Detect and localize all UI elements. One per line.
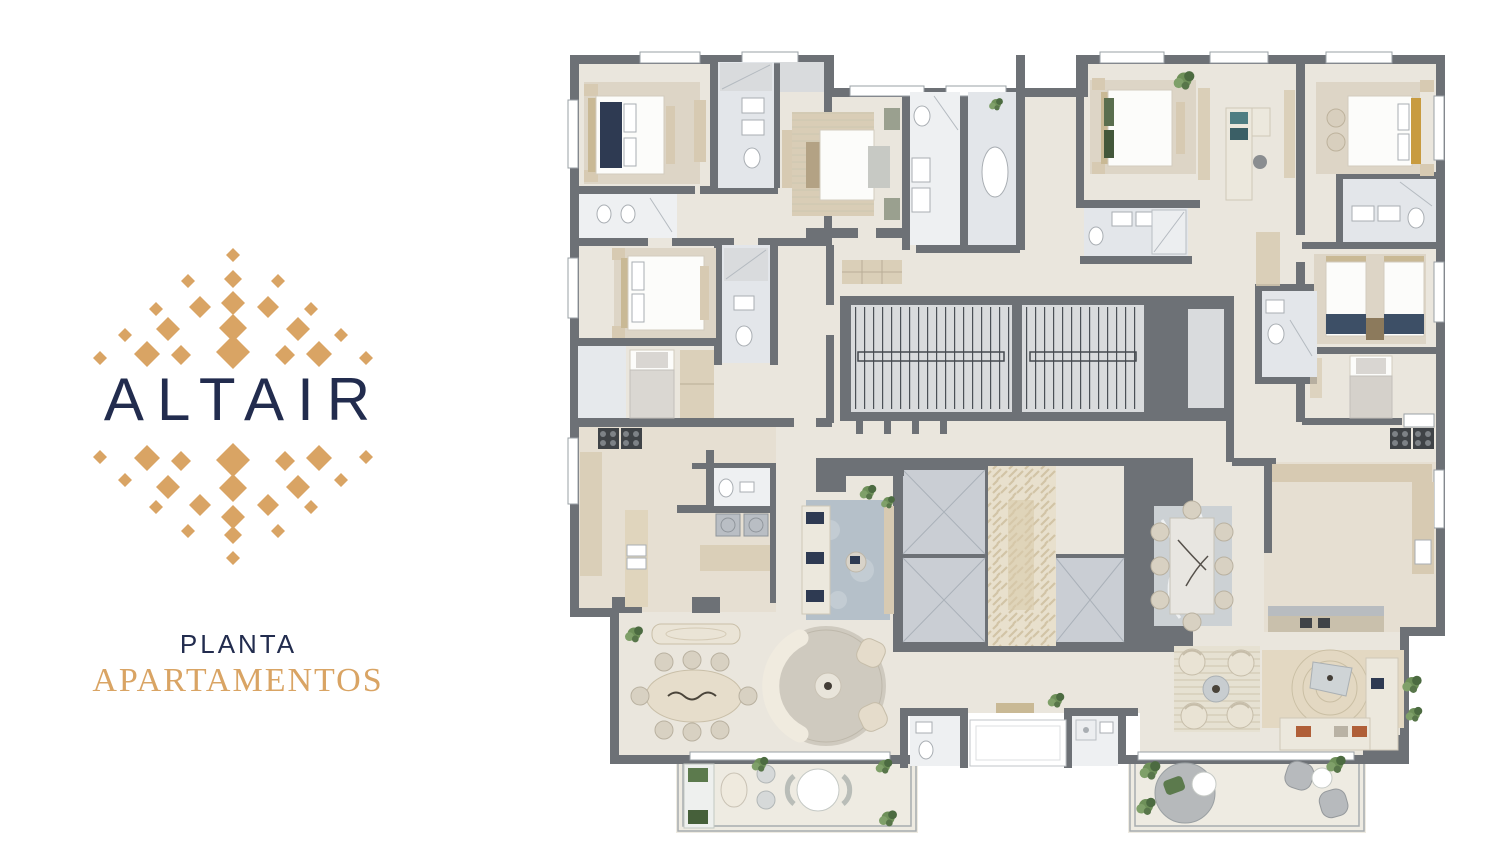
tv-console (884, 506, 894, 614)
green-pillow (1104, 98, 1114, 126)
bathroom-top-left (718, 62, 774, 188)
service-wc (714, 468, 770, 506)
sofa (1366, 658, 1398, 750)
bathroom-center (910, 92, 960, 245)
side-table (721, 773, 747, 807)
brand-subtitle-apartamentos: APARTAMENTOS (40, 662, 434, 700)
closet (680, 350, 714, 418)
powder-right (1072, 716, 1118, 766)
bedroom-left-small (578, 346, 714, 418)
brochure-page: ALTAIR PLANTA APARTAMENTOS (0, 0, 1495, 868)
teal-pillow (1230, 112, 1248, 124)
utility-shaft (1144, 296, 1234, 421)
brand-name: ALTAIR (40, 370, 434, 430)
lounge-right (1174, 646, 1260, 732)
master-bedroom (1090, 71, 1210, 180)
green-pillow (1104, 130, 1114, 158)
wc-left (579, 194, 677, 238)
outdoor-table (797, 769, 839, 811)
living-left (802, 485, 895, 620)
dining-right (1151, 501, 1233, 631)
elevator-lobby (893, 458, 1193, 652)
staircase-left (851, 305, 1012, 412)
bathroom-right (1343, 179, 1436, 242)
twin-bedroom (1314, 254, 1426, 344)
bathroom-right-center (1084, 208, 1188, 256)
powder-left (910, 716, 960, 766)
island (1268, 606, 1384, 632)
brand-subtitle-planta: PLANTA (40, 629, 434, 660)
elevator-cab (1056, 558, 1124, 642)
navy-throw (1326, 314, 1366, 334)
round-lounge (766, 626, 890, 746)
navy-bed-accent (600, 102, 622, 168)
gold-headboard (1411, 98, 1421, 164)
staircase-right (1022, 305, 1144, 412)
lobby-tile-corridor (988, 466, 1056, 646)
tufted-headboard (806, 142, 820, 188)
bedroom-right-top (1316, 80, 1434, 176)
navy-throw (1384, 314, 1424, 334)
elevator-cab (903, 558, 985, 642)
elevator-cab (903, 470, 985, 554)
sink (1415, 540, 1431, 564)
console-table (652, 624, 740, 644)
floor-plan (0, 0, 1495, 868)
bedroom-top-left (584, 82, 706, 184)
teal-pillow (1230, 128, 1248, 140)
bedroom-left-mid (612, 248, 716, 338)
bathroom-mid-right (1262, 291, 1317, 377)
living-right (1262, 650, 1422, 750)
bathroom-tub (968, 92, 1016, 245)
bathroom-left-mid (722, 245, 770, 363)
